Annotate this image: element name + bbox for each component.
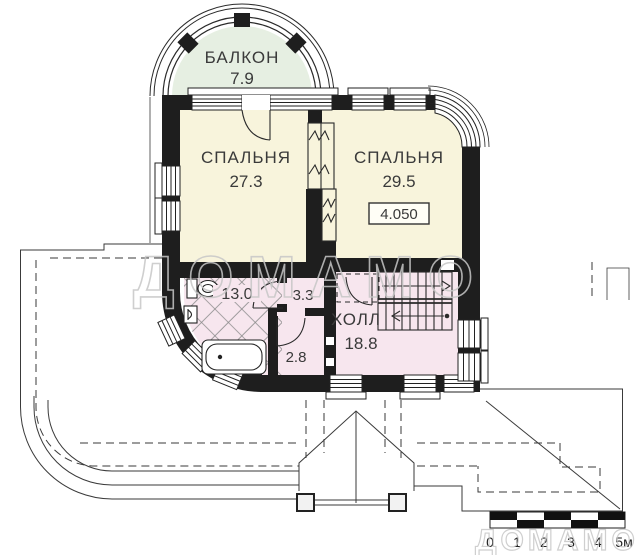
stair-start-dot xyxy=(445,314,450,319)
floor-plan-canvas: БАЛКОН 7.9 СПАЛЬНЯ 27.3 СПАЛЬНЯ 29.5 4.0… xyxy=(0,0,635,555)
roof-right-edge xyxy=(414,389,623,511)
gable-dormer xyxy=(297,411,414,511)
watermark-bottom: ДОМАМО xyxy=(475,524,635,555)
closet-area: 2.8 xyxy=(286,349,307,366)
sill-top-1 xyxy=(188,88,338,95)
sill-left-1 xyxy=(155,163,162,199)
wall-right-bedroom2 xyxy=(462,140,480,258)
level-mark: 4.050 xyxy=(380,206,418,223)
wall-top-left-pier xyxy=(162,95,192,110)
sill-left-2 xyxy=(155,198,162,234)
roof-hip-line xyxy=(486,401,620,509)
gable-post-right xyxy=(389,494,406,511)
hall-area: 18.8 xyxy=(344,334,377,353)
sill-top-3 xyxy=(390,88,430,95)
bedroom1-label: СПАЛЬНЯ xyxy=(201,148,291,167)
floor-plan-drawing: БАЛКОН 7.9 СПАЛЬНЯ 27.3 СПАЛЬНЯ 29.5 4.0… xyxy=(0,0,635,555)
roof-right-detail xyxy=(607,268,629,300)
watermarks: ДОМАМО ДОМАМО xyxy=(133,245,635,555)
sill-right-1 xyxy=(481,318,488,350)
sill-bottom-2 xyxy=(400,392,440,399)
bathtub-drain xyxy=(218,355,222,359)
balcony-area: 7.9 xyxy=(230,69,254,88)
gable-post-left xyxy=(297,494,314,511)
sill-top-2 xyxy=(348,88,388,95)
vent-stub-top xyxy=(308,110,322,123)
bathtub-inner xyxy=(206,344,262,370)
roof-arc-middle xyxy=(34,396,299,485)
balcony-post-top xyxy=(234,13,250,27)
hall-label: ХОЛЛ xyxy=(331,310,381,329)
bedroom2-area: 29.5 xyxy=(382,172,415,191)
balcony-label: БАЛКОН xyxy=(205,48,280,67)
sill-right-2 xyxy=(481,351,488,383)
vent-square-1 xyxy=(326,337,334,345)
gable-rail xyxy=(314,500,389,505)
sill-bottom-1 xyxy=(326,392,366,399)
roof-arc-inner xyxy=(48,400,299,471)
bedroom1-area: 27.3 xyxy=(229,172,262,191)
watermark-center: ДОМАМО xyxy=(133,245,487,310)
bedroom2-label: СПАЛЬНЯ xyxy=(354,148,444,167)
wall-top-mid-pier xyxy=(332,95,352,110)
vent-square-2 xyxy=(326,358,334,366)
balcony-door-opening xyxy=(242,95,270,110)
bedrooms-floor xyxy=(180,105,480,262)
wall-top-pier2 xyxy=(384,95,394,110)
